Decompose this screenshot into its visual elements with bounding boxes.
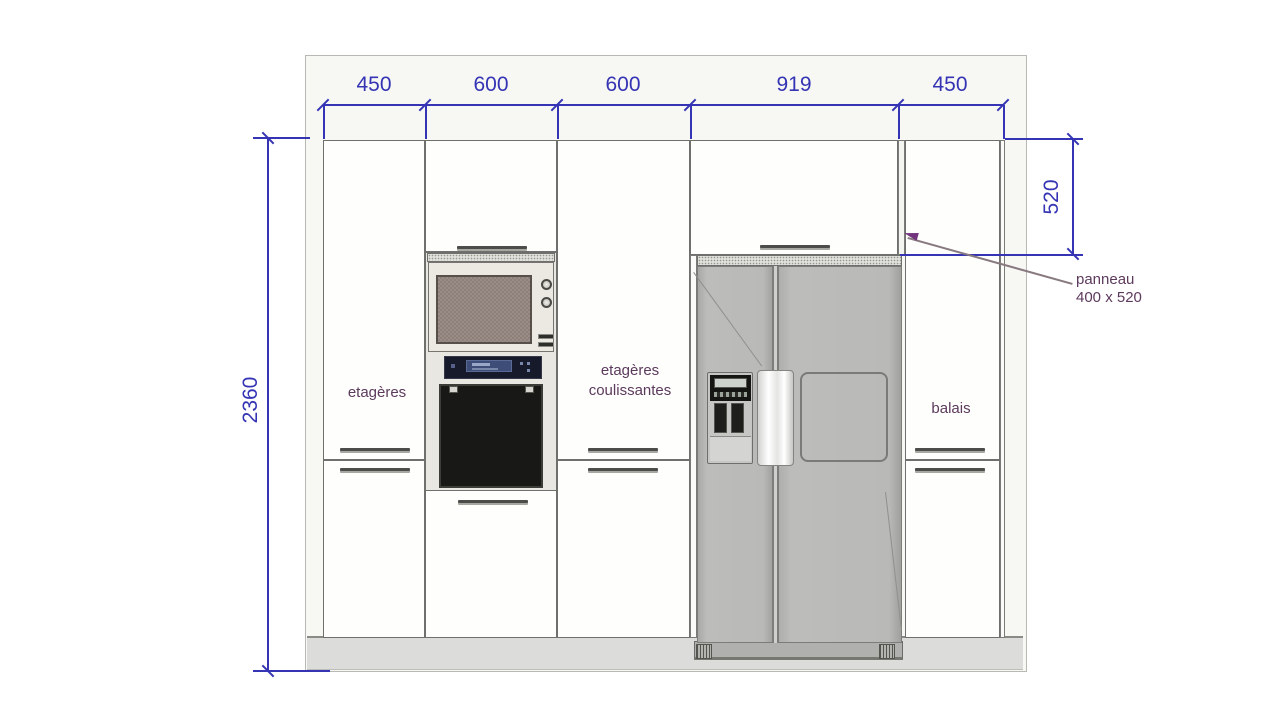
cabinet-door-left-bottom	[323, 460, 425, 638]
fridge-foot	[879, 644, 895, 659]
label-middle-line2: coulissantes	[569, 381, 691, 401]
right-dimension-line	[1072, 139, 1074, 255]
label-middle-cabinet: etagères coulissantes	[569, 361, 691, 401]
cabinet-door-mid-bottom	[557, 460, 690, 638]
oven-display-mark	[472, 363, 490, 366]
oven-hinge	[525, 386, 534, 393]
left-dimension-line	[267, 138, 269, 672]
dim-extension-line	[323, 105, 325, 139]
callout-line1: panneau	[1076, 271, 1186, 289]
oven-hinge	[449, 386, 458, 393]
door-handle	[915, 468, 985, 471]
dispenser-display	[714, 378, 747, 388]
dim-extension-line	[1003, 105, 1005, 139]
plinth	[307, 636, 1023, 670]
microwave-knob	[541, 297, 552, 308]
oven-button	[520, 362, 523, 365]
door-handle	[588, 448, 658, 451]
microwave-window	[436, 275, 532, 344]
dimension-label: 600	[461, 73, 521, 97]
dim-extension-line	[253, 670, 330, 672]
microwave-vent	[538, 342, 554, 347]
cabinet-door-over-fridge	[690, 140, 898, 255]
fridge-door-panel	[800, 372, 888, 462]
callout-line2: 400 x 520	[1076, 289, 1186, 307]
cabinet-door-under-oven	[425, 490, 557, 638]
dimension-label: 450	[920, 73, 980, 97]
dimension-label: 600	[593, 73, 653, 97]
side-panel-panneau	[898, 140, 905, 255]
oven-display-mark	[472, 368, 498, 370]
fridge-handle-bar	[757, 370, 794, 466]
door-handle	[588, 468, 658, 471]
oven-display	[466, 360, 512, 372]
dimension-label: 450	[344, 73, 404, 97]
right-side-panel	[1000, 140, 1005, 638]
fridge-left-filler	[690, 255, 697, 638]
label-middle-line1: etagères	[569, 361, 691, 381]
door-handle	[340, 448, 410, 451]
door-handle	[458, 500, 528, 503]
dim-extension-line	[898, 105, 900, 139]
fridge-base	[694, 641, 903, 660]
door-handle	[457, 246, 527, 249]
dimension-label-520: 520	[1040, 167, 1062, 227]
cabinet-door-left-top	[323, 140, 425, 460]
oven-button	[451, 364, 455, 368]
dimension-label: 919	[764, 73, 824, 97]
elevation-drawing: etagères etagères coulissantes	[0, 0, 1280, 704]
oven-door	[439, 384, 543, 488]
dispenser-tray	[710, 436, 751, 461]
door-handle	[915, 448, 985, 451]
oven-button	[527, 362, 530, 365]
microwave-vent	[538, 334, 554, 339]
microwave-knob	[541, 279, 552, 290]
door-handle	[760, 245, 830, 248]
dim-extension-line	[557, 105, 559, 139]
housing-top-strip	[427, 253, 555, 262]
dispenser-slot	[731, 403, 744, 433]
label-right-cabinet: balais	[901, 399, 1001, 419]
dimension-label-height: 2360	[239, 360, 261, 440]
cabinet-door-over-oven	[425, 140, 557, 252]
dim-extension-line	[690, 105, 692, 139]
callout-text: panneau 400 x 520	[1076, 271, 1186, 307]
fridge-foot	[696, 644, 712, 659]
label-left-cabinet: etagères	[327, 383, 427, 403]
dim-extension-line	[253, 137, 310, 139]
dim-extension-line	[425, 105, 427, 139]
dispenser-buttons	[714, 392, 747, 397]
fridge-top-strip	[697, 255, 902, 266]
dispenser-slot	[714, 403, 727, 433]
cabinet-door-mid-top	[557, 140, 690, 460]
dim-extension-line	[900, 254, 1083, 256]
oven-button	[527, 369, 530, 372]
cabinet-door-right-bottom	[905, 460, 1000, 638]
door-handle	[340, 468, 410, 471]
